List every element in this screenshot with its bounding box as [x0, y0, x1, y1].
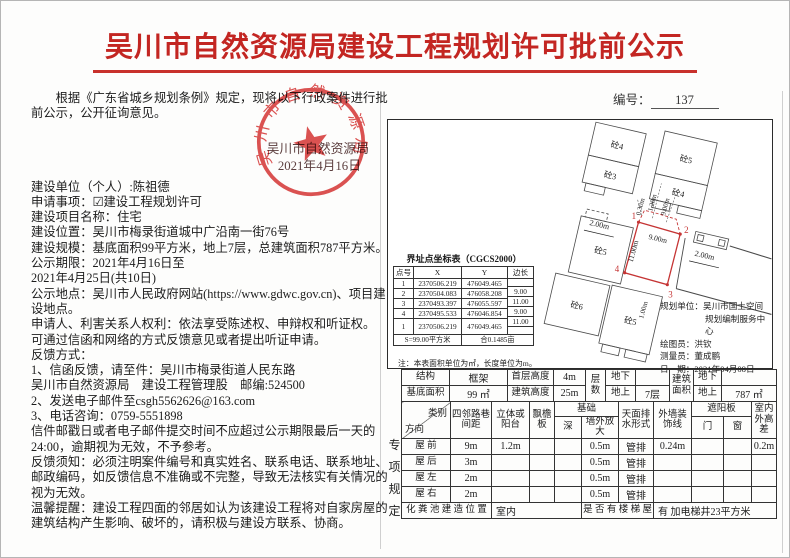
cell: 0.5m [582, 438, 619, 454]
dim-label: 11.00m [626, 239, 641, 263]
notice-page: 吴川市自然资源局建设工程规划许可批前公示 编号：137 根据《广东省城乡规划条例… [0, 0, 790, 558]
header-foundation-depth: 深 [555, 417, 582, 439]
cell [752, 470, 777, 486]
building-height-value: 25m [554, 386, 586, 402]
cell: 管排 [619, 486, 654, 502]
corner-category-label: 类别 [428, 405, 447, 419]
cell [555, 438, 582, 454]
notice-line: 申请人、利害关系人权利：依法享受陈述权、申辩权和听证权。 [31, 317, 391, 332]
cell [692, 486, 724, 502]
coord-cell: 2 [394, 289, 414, 299]
coord-side: 11.00 [508, 317, 534, 327]
coord-cell-empty [508, 279, 534, 287]
survey-info: 规划单位：吴川市国土空间 规划编制服务中心 绘图员：洪钦 测量员：董成鹏 日 期… [660, 300, 772, 376]
building-label: 砼4 [671, 187, 686, 200]
building-label: 砼5 [593, 245, 608, 258]
coord-header: Y [462, 267, 508, 279]
cell: 3m [451, 454, 492, 470]
spec-matrix-table: 类别 方向 四邻路巷间距 立体或阳台 飘檐板 基础 天面排水形式 外墙装饰线 遮… [401, 401, 777, 519]
scan-edge-line [782, 91, 783, 553]
coord-cell: 2370493.397 [414, 299, 462, 309]
gfa-below-label: 地下 [694, 370, 722, 386]
coord-header: 点号 [394, 267, 414, 279]
coord-cell: 476046.854 [462, 309, 508, 319]
header-roof-drain: 天面排水形式 [619, 402, 654, 439]
dim-label: 9.00m [648, 232, 669, 245]
coord-cell: 476049.465 [462, 319, 508, 335]
coord-side: 9.00 [508, 287, 534, 297]
cell: 2m [451, 470, 492, 486]
coord-header: 边长 [508, 267, 534, 279]
dim-underline [584, 230, 614, 237]
cell [724, 454, 752, 470]
cell: 0.2m [752, 438, 777, 454]
spec-form: 结构 框架 首层高度 4m 层数 地下 建筑面积 地下 基底面积 99 ㎡ 建筑… [401, 369, 776, 519]
cell [555, 470, 582, 486]
row-label: 屋 左 [402, 470, 451, 486]
coord-footer-mu: 合0.1485亩 [462, 335, 534, 346]
coord-cell: 1 [394, 279, 414, 289]
coord-table-title: 界址点坐标表（CGCS2000） [393, 252, 535, 265]
cell: 管排 [619, 470, 654, 486]
survey-surveyor: 测量员：董成鹏 [660, 350, 772, 363]
notice-line: 建设规模：基底面积99平方米，地上7层，总建筑面积787平方米。 [31, 241, 391, 256]
dim-label: 1.20m [646, 193, 658, 213]
header-sunshade-window: 窗 [724, 417, 752, 439]
cell [530, 470, 555, 486]
cell [555, 454, 582, 470]
dim-label: 1.00m [637, 300, 649, 320]
survey-unit-line2: 规划编制服务中心 [660, 313, 772, 338]
cell [654, 470, 692, 486]
cell [492, 486, 530, 502]
coord-footer-area: S=99.00平方米 [394, 335, 462, 346]
gfa-label: 建筑面积 [670, 370, 694, 402]
floors-above-value: 7层 [636, 386, 670, 402]
header-foundation: 基础 [555, 402, 619, 417]
point-label: 4 [615, 264, 620, 274]
page-title: 吴川市自然资源局建设工程规划许可批前公示 [1, 25, 789, 73]
header-height-diff: 室内外高差 [752, 402, 777, 439]
cell [654, 454, 692, 470]
gfa-below-value [722, 370, 777, 386]
coord-table-note: 注：本表面积单位为㎡，长度单位为m。 [398, 358, 537, 369]
page-title-text: 吴川市自然资源局建设工程规划许可批前公示 [93, 25, 697, 73]
cell [530, 454, 555, 470]
corner-direction-label: 方向 [405, 421, 424, 435]
matrix-row-rear: 屋 后 3m 0.5m 管排 [402, 454, 777, 470]
notice-body: 根据《广东省城乡规划条例》规定，现将以下行政案件进行批前公示，公开征询意见。 吴… [31, 91, 391, 531]
notice-line: 2、发送电子邮件至csgh5562626@163.com [31, 394, 391, 409]
header-eave-board: 飘檐板 [530, 402, 555, 439]
cell [724, 470, 752, 486]
stair-room-label: 是 否 有 楼 梯 屋 [582, 502, 654, 518]
notice-line: 1、信函反馈，请至件：吴川市梅录街道人民东路 [31, 363, 391, 378]
cell: 2m [451, 486, 492, 502]
building-block: 砼5 [597, 285, 662, 362]
notice-line: 建设项目名称：住宅 [31, 210, 391, 225]
cell: 1.2m [492, 438, 530, 454]
notice-line: 公示地点：吴川市人民政府网站(https://www.gdwc.gov.cn)、… [31, 287, 391, 318]
cell [492, 470, 530, 486]
doc-number-value: 137 [651, 93, 719, 109]
coord-cell: 2370504.083 [414, 289, 462, 299]
base-area-label: 基底面积 [402, 386, 450, 402]
notice-line: 反馈方式： [31, 348, 391, 363]
dim-label: 0.30m [634, 197, 646, 217]
power-line [730, 246, 772, 259]
coord-cell: 3 [394, 299, 414, 309]
building-label: 砼3 [603, 169, 618, 182]
boundary-point [679, 232, 682, 235]
header-foundation-extend: 墙外放大 [582, 417, 619, 439]
cell [492, 454, 530, 470]
spec-summary-table: 结构 框架 首层高度 4m 层数 地下 建筑面积 地下 基底面积 99 ㎡ 建筑… [401, 369, 777, 402]
dim-label: 2.00m [589, 218, 611, 231]
coord-side: 9.00 [508, 307, 534, 317]
cell: 管排 [619, 454, 654, 470]
coord-table-block: 界址点坐标表（CGCS2000） 点号 X Y 边长 1 2370506.219… [393, 252, 535, 346]
floors-above-label: 地上 [606, 386, 636, 402]
header-sunshade-door: 门 [692, 417, 724, 439]
cell: 0.5m [582, 486, 619, 502]
coord-cell: 2370495.533 [414, 309, 462, 319]
structure-label: 结构 [402, 370, 450, 386]
point-label: 3 [668, 290, 673, 300]
notice-line: 温馨提醒：建设工程四面的邻居如认为该建设工程将对自家房屋的建筑结构产生影响、破坏… [31, 501, 391, 532]
coord-cell: 2370506.219 [414, 279, 462, 289]
first-floor-label: 首层高度 [508, 370, 554, 386]
building-block: 砼4 砼3 [580, 122, 646, 201]
cell [752, 454, 777, 470]
cell [530, 438, 555, 454]
special-rules-vertical-label: 专项规定 [388, 434, 401, 522]
coord-cell: 476049.465 [462, 279, 508, 289]
point-label: 2 [684, 225, 688, 235]
coord-cell: 2370506.219 [414, 319, 462, 335]
site-plan-box: 砼4 砼3 砼5 砼4 砼5 砼6 [387, 119, 773, 369]
septic-value: 室内 [492, 502, 582, 518]
building-label: 砼4 [610, 139, 625, 152]
building-block: 砼6 [544, 273, 610, 336]
notice-line: 3、电话咨询：0759-5551898 [31, 409, 391, 424]
dim-underline [689, 261, 719, 268]
cell [555, 486, 582, 502]
building-height-label: 建筑高度 [508, 386, 554, 402]
notice-line: 信件邮戳日或者电子邮件提交时间不应超过公示期限最后一天的24:00，逾期视为无效… [31, 424, 391, 455]
boundary-point [637, 221, 640, 224]
coord-cell-empty [508, 327, 534, 335]
notice-line: 建设位置：吴川市梅录街道城中广沿南一街76号 [31, 225, 391, 240]
building-label: 砼5 [679, 153, 694, 166]
matrix-corner-cell: 类别 方向 [402, 402, 451, 439]
coord-cell: 476055.597 [462, 299, 508, 309]
building-block: 砼5 砼4 [648, 131, 718, 218]
gfa-above-label: 地上 [694, 386, 722, 402]
base-area-value: 99 ㎡ [450, 386, 508, 402]
row-label: 屋 后 [402, 454, 451, 470]
row-label: 屋 前 [402, 438, 451, 454]
survey-unit-line1: 规划单位：吴川市国土空间 [660, 300, 772, 313]
cell: 0.5m [582, 454, 619, 470]
pole-structure [693, 231, 728, 249]
dim-label: 2.00m [694, 249, 716, 262]
cell [692, 470, 724, 486]
header-neighbour-gap: 四邻路巷间距 [451, 402, 492, 439]
cell: 9m [451, 438, 492, 454]
coord-cell: 4 [394, 309, 414, 319]
doc-number-label: 编号： [613, 93, 651, 107]
coord-cell: 476058.208 [462, 289, 508, 299]
cell [692, 438, 724, 454]
seal-star-icon [290, 122, 332, 163]
building-label: 砼5 [623, 315, 638, 328]
doc-number: 编号：137 [613, 89, 719, 109]
cell: 0.24m [654, 438, 692, 454]
header-sunshade: 遮阳板 [692, 402, 752, 417]
gfa-above-value: 787 ㎡ [722, 386, 777, 402]
cell: 管排 [619, 438, 654, 454]
cell [692, 454, 724, 470]
matrix-row-right: 屋 右 2m 0.5m 管排 [402, 486, 777, 502]
septic-label: 化 粪 池 建 造 位 置 [402, 502, 492, 518]
coord-side: 11.00 [508, 297, 534, 307]
floors-below-value [636, 370, 670, 386]
notice-line: 公示期限：2021年4月16日至 [31, 256, 391, 271]
floors-below-label: 地下 [606, 370, 636, 386]
cell [724, 486, 752, 502]
notice-line: 可通过信函和网络的方式反馈意见或者提出听证申请。 [31, 333, 391, 348]
row-label: 屋 右 [402, 486, 451, 502]
matrix-row-front: 屋 前 9m 1.2m 0.5m 管排 0.24m 0.2m [402, 438, 777, 454]
first-floor-value: 4m [554, 370, 586, 386]
stair-room-value: 有 加电梯井23平方米 [654, 502, 777, 518]
floors-label: 层数 [586, 370, 606, 402]
boundary-point [623, 271, 626, 274]
header-wall-trim: 外墙装饰线 [654, 402, 692, 439]
notice-line: 吴川市自然资源局 建设工程管理股 邮编:524500 [31, 378, 391, 393]
boundary-point [666, 283, 669, 286]
building-label: 砼6 [570, 299, 585, 312]
cell [530, 486, 555, 502]
coord-table: 点号 X Y 边长 1 2370506.219 476049.465 9.00 … [393, 266, 534, 346]
cell: 0.5m [582, 470, 619, 486]
notice-line: 2021年4月25日(共10日) [31, 271, 391, 286]
notice-line: 申请事项：☑建设工程规划许可 [31, 195, 391, 210]
header-balcony: 立体或阳台 [492, 402, 530, 439]
notice-line: 反馈须知：必须注明案件编号和真实姓名、联系电话、联系地址、邮政编码，如反馈信息不… [31, 455, 391, 501]
cell [654, 486, 692, 502]
seal-area: 吴川市自然资源局 2021年4月16日 吴川市自然资源局 [31, 122, 391, 180]
survey-drafter: 绘图员：洪钦 [660, 338, 772, 351]
coord-cell: 1 [394, 319, 414, 335]
matrix-row-left: 屋 左 2m 0.5m 管排 [402, 470, 777, 486]
cell [752, 486, 777, 502]
coord-header: X [414, 267, 462, 279]
structure-value: 框架 [450, 370, 508, 386]
cell [724, 438, 752, 454]
